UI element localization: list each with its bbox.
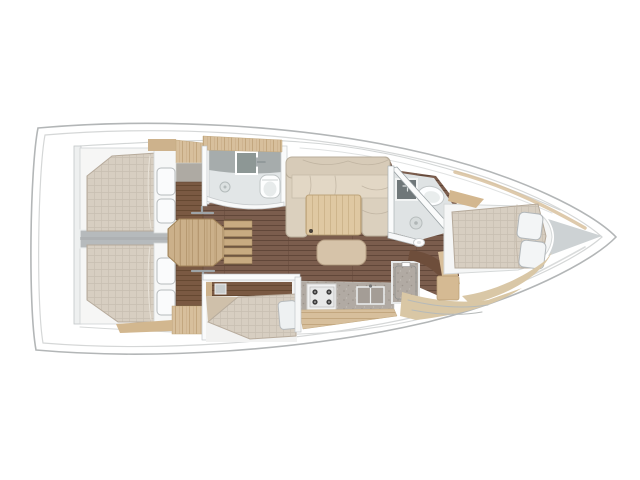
yacht-floorplan-image <box>0 0 640 480</box>
headboard-wood <box>148 139 176 151</box>
ladder-treads <box>224 221 252 264</box>
shower-drain <box>410 217 422 229</box>
double-sink <box>357 284 384 304</box>
wardrobe-dark-wood <box>176 262 203 306</box>
cabin-vanity-top <box>176 163 203 182</box>
shower-drain <box>220 182 230 192</box>
wardrobe-dark-wood <box>176 182 203 220</box>
galley-faucet <box>369 284 372 287</box>
galley-wall-left <box>295 277 301 332</box>
saloon-table <box>306 195 361 235</box>
ottoman <box>317 240 366 265</box>
pillow <box>517 212 544 241</box>
shelf-item <box>215 284 226 294</box>
yacht-floorplan-svg <box>0 0 640 480</box>
entry-step-wood <box>437 276 459 300</box>
shelf-end-wood <box>206 282 212 296</box>
cabin-cabinet-wood <box>176 140 203 163</box>
aft-head <box>203 136 287 209</box>
partition-wall <box>202 146 207 206</box>
icebox-handle <box>402 263 410 267</box>
companionway-pod <box>168 219 224 266</box>
bathroom-wall-left <box>388 166 394 238</box>
pillow <box>157 199 175 223</box>
pillow <box>157 168 175 195</box>
mid-berth-wall-top <box>203 274 300 280</box>
pillow <box>157 258 175 284</box>
cabin-low-cabinet <box>172 306 203 334</box>
table-leg-mark <box>309 229 313 233</box>
washbasin <box>236 152 257 174</box>
stove <box>307 284 336 310</box>
floor-vase <box>414 239 425 247</box>
toilet <box>260 175 280 198</box>
mid-berth-cabin <box>203 274 300 342</box>
